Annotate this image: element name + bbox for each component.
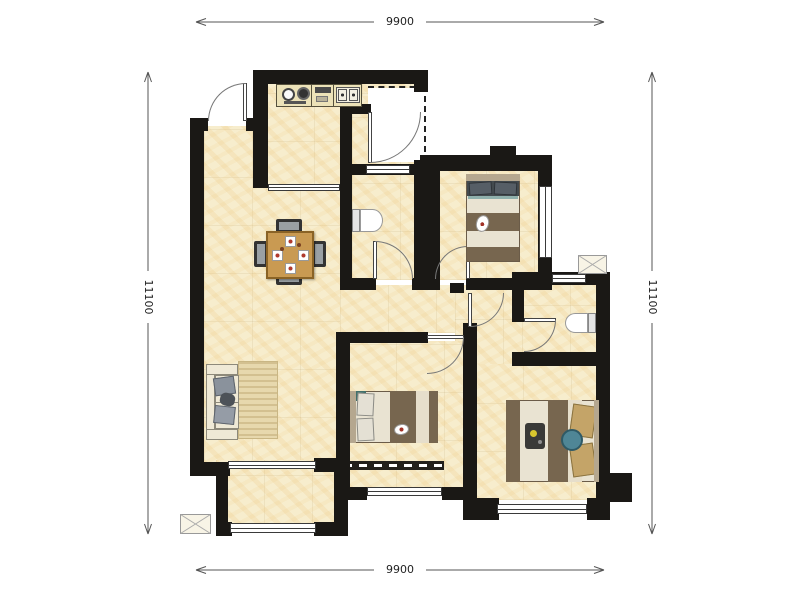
wall-segment (190, 118, 204, 476)
counter-divider (311, 85, 312, 106)
tray-candle-icon (530, 430, 537, 437)
headboard (466, 174, 520, 181)
toilet-bowl (565, 313, 588, 333)
plate (285, 236, 296, 247)
wall-segment (336, 332, 350, 500)
wall-segment (420, 155, 552, 171)
window-bedroom-right (539, 186, 552, 258)
dining-chair (312, 241, 326, 267)
table-decor-dot (280, 247, 284, 251)
table-decor-dot (297, 243, 301, 247)
dimension-label-bottom: 9900 (374, 563, 426, 577)
window-bathroom-1 (366, 165, 410, 174)
round-cushion-teal (561, 429, 583, 451)
sofa-pillow (213, 405, 236, 425)
blanket-band (429, 391, 438, 443)
floor-plan-canvas: 9900 9900 11100 11100 (0, 0, 800, 600)
counter-control-strip (284, 101, 306, 104)
window-master-bottom (497, 504, 587, 514)
toilet-tank (588, 313, 596, 333)
dimension-label-right: 11100 (645, 271, 659, 323)
wall-segment (450, 283, 464, 293)
counter-divider (333, 85, 334, 106)
window-balcony-bottom (230, 523, 316, 533)
counter-appliance-icon (315, 87, 331, 93)
sofa-armrest (206, 429, 238, 440)
bed-pillow (469, 181, 493, 196)
wall-segment (490, 146, 516, 166)
wall-segment (414, 160, 428, 290)
wall-segment (336, 487, 367, 500)
window-bathroom-2 (552, 274, 586, 283)
wall-segment (412, 278, 428, 290)
shaft-crossed-box-icon (180, 514, 211, 534)
wall-segment (314, 458, 336, 472)
tray-dot (538, 440, 542, 444)
cooktop-burner-icon (282, 88, 295, 101)
wall-pier-exterior (608, 473, 632, 502)
blanket-band (416, 391, 429, 443)
blanket-band (390, 391, 416, 443)
sheet-accent (468, 196, 518, 199)
dashed-boundary-right (424, 86, 426, 162)
counter-appliance-icon (316, 96, 328, 102)
blanket-band (467, 247, 519, 261)
entry-door-swing (208, 83, 246, 121)
plate (285, 263, 296, 274)
wall-segment (340, 164, 352, 290)
sink-basin (349, 89, 358, 101)
wall-segment (463, 323, 477, 502)
dashed-opening-band (344, 461, 444, 470)
headboard (594, 400, 599, 482)
bed-pillow (356, 393, 374, 417)
cooktop-pot-icon (297, 87, 310, 100)
wall-segment (340, 278, 376, 290)
window-living-balcony-divider (228, 461, 316, 469)
glass-partition-kitchen (268, 184, 340, 191)
dimension-label-top: 9900 (374, 15, 426, 29)
wall-segment (414, 70, 428, 92)
rug (238, 361, 278, 439)
blanket-band (467, 213, 519, 231)
shaft-crossed-box-icon (578, 255, 607, 274)
wall-segment (216, 474, 228, 526)
plate (298, 250, 309, 261)
plate (272, 250, 283, 261)
wall-segment (428, 278, 438, 290)
wall-segment (512, 272, 524, 322)
wall-segment (253, 70, 428, 84)
sink-basin (338, 89, 347, 101)
wall-segment (253, 70, 268, 188)
wall-segment (442, 487, 470, 500)
blanket-band (506, 400, 520, 482)
toilet-bowl (360, 209, 383, 232)
bed-pillow (494, 181, 518, 195)
window-middle-balcony (367, 487, 442, 496)
wall-segment (512, 352, 610, 366)
bed-pillow (356, 418, 374, 442)
wall-segment (587, 498, 610, 520)
toilet-tank (352, 209, 360, 232)
sofa-armrest (206, 364, 238, 375)
floor-corridor (340, 285, 465, 333)
dimension-label-left: 11100 (141, 271, 155, 323)
wall-segment (463, 498, 499, 520)
